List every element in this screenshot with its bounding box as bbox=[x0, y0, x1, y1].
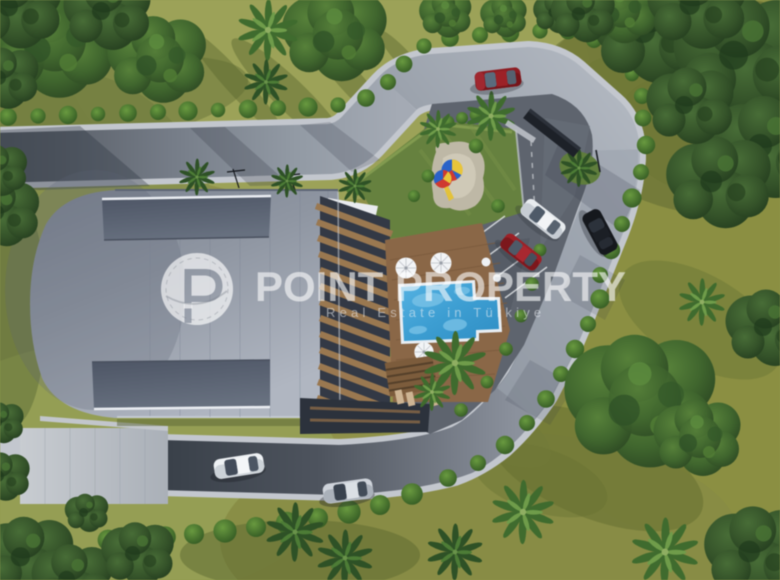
svg-text:POINT PROPERTY: POINT PROPERTY bbox=[255, 263, 626, 310]
svg-text:Real Estate in Türkiye: Real Estate in Türkiye bbox=[326, 305, 545, 320]
